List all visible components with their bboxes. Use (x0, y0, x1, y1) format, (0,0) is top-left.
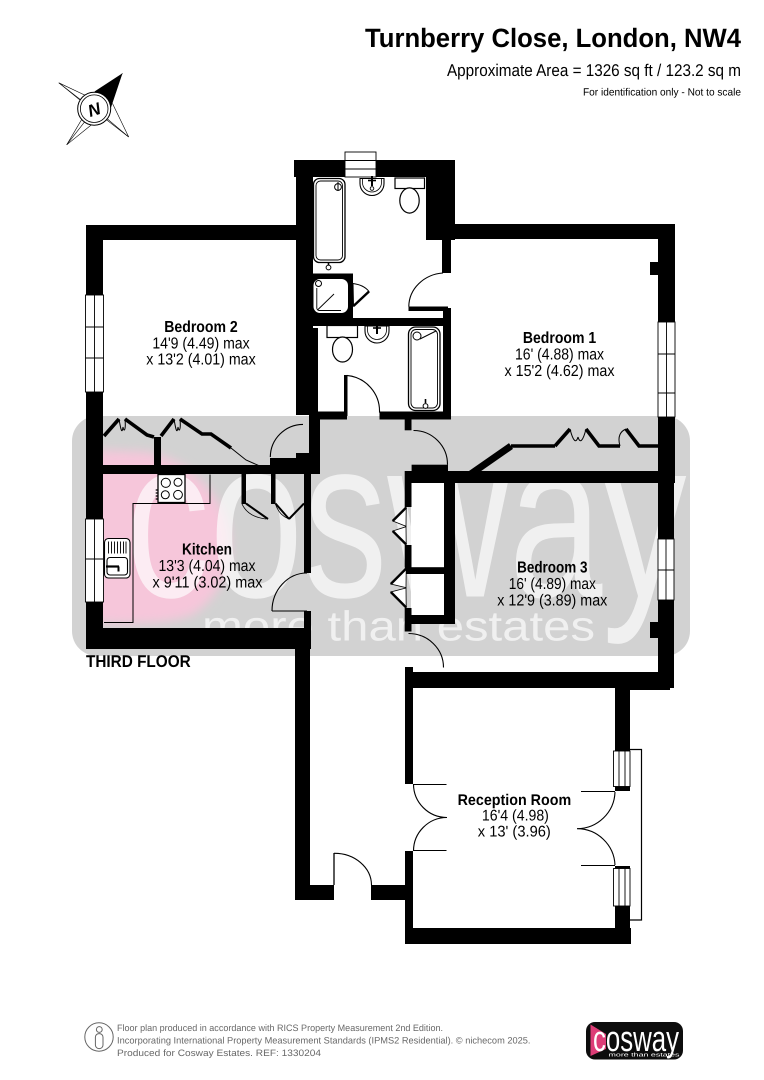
svg-text:Turnberry Close, London, NW4: Turnberry Close, London, NW4 (365, 23, 741, 53)
svg-text:more than estates: more than estates (609, 1053, 680, 1059)
svg-text:Bedroom 3: Bedroom 3 (517, 560, 587, 577)
svg-text:Incorporating International Pr: Incorporating International Property Mea… (117, 1036, 531, 1046)
svg-text:Approximate Area = 1326 sq ft: Approximate Area = 1326 sq ft / 123.2 sq… (447, 61, 741, 80)
svg-text:Kitchen: Kitchen (182, 542, 232, 559)
svg-text:x 15'2 (4.62) max: x 15'2 (4.62) max (505, 363, 615, 380)
svg-text:For identification only - Not: For identification only - Not to scale (583, 87, 741, 99)
svg-text:13'3 (4.04) max: 13'3 (4.04) max (159, 558, 256, 575)
svg-text:Bedroom 1: Bedroom 1 (523, 330, 596, 347)
svg-text:Produced for Cosway Estates.: Produced for Cosway Estates. REF: 133020… (117, 1048, 321, 1058)
svg-text:16' (4.88) max: 16' (4.88) max (515, 347, 604, 364)
svg-text:x 9'11 (3.02) max: x 9'11 (3.02) max (153, 575, 263, 592)
svg-text:Bedroom 2: Bedroom 2 (164, 319, 238, 336)
svg-text:THIRD FLOOR: THIRD FLOOR (86, 652, 191, 671)
svg-text:14'9 (4.49) max: 14'9 (4.49) max (152, 336, 249, 353)
svg-text:16'4 (4.98): 16'4 (4.98) (482, 808, 549, 825)
svg-text:x 12'9 (3.89) max: x 12'9 (3.89) max (497, 593, 607, 610)
svg-text:x 13' (3.96): x 13' (3.96) (478, 823, 551, 840)
svg-text:16' (4.89) max: 16' (4.89) max (509, 576, 596, 593)
svg-text:Floor plan produced in accorda: Floor plan produced in accordance with R… (117, 1023, 443, 1033)
svg-text:Reception Room: Reception Room (458, 792, 572, 809)
svg-text:x 13'2 (4.01) max: x 13'2 (4.01) max (146, 352, 255, 369)
